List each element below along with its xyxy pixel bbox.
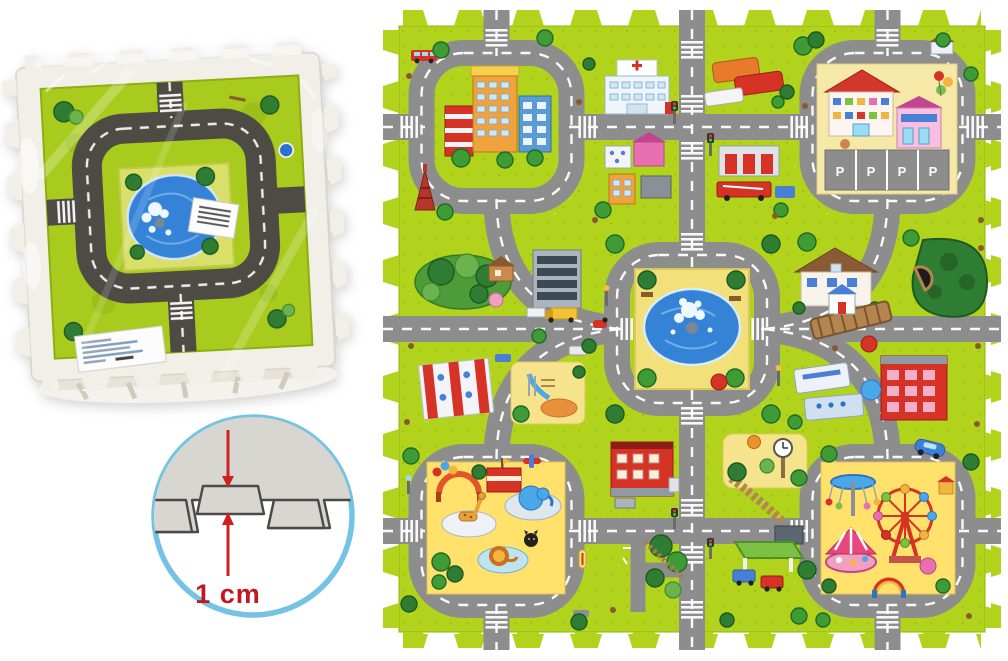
assembled-mat-svg: P P P P (383, 10, 1001, 650)
foam-tooth-right (268, 500, 324, 528)
parking-space-label: P (836, 164, 845, 179)
teddy-bear (840, 139, 850, 149)
packaged-mat-photo (1, 40, 353, 413)
fountain-pedestal (686, 322, 698, 334)
red-tower-building (445, 106, 473, 156)
parking-space-label: P (867, 164, 876, 179)
pig (489, 293, 503, 307)
sandbox (541, 399, 577, 417)
thickness-diagram: 1 cm (128, 408, 378, 624)
bus-stop (615, 498, 635, 508)
red-building (881, 356, 947, 420)
flower-bed (711, 374, 727, 390)
foam-tab-measured (197, 486, 264, 514)
product-photo: 1 cm (0, 0, 1008, 661)
thickness-label: 1 cm (195, 579, 261, 609)
blue-office-building (519, 96, 551, 152)
forest-park (415, 254, 515, 309)
parking-space-label: P (929, 164, 938, 179)
tile-zoo (401, 448, 589, 617)
blue-tree (861, 380, 881, 400)
barcode-sticker (188, 198, 239, 239)
gray-office-building (527, 250, 581, 323)
bench (641, 292, 653, 297)
foam-tooth-left (138, 500, 192, 532)
thickness-diagram-svg: 1 cm (128, 408, 378, 624)
playground (511, 362, 585, 424)
red-white-building (418, 358, 493, 419)
blue-car (733, 570, 755, 582)
tunnel-hill (913, 239, 987, 317)
package-illustration (1, 40, 353, 413)
assembled-mat: P P P P (383, 10, 1001, 650)
orange-highrise (471, 66, 519, 152)
parking-lot: P P P P (825, 150, 949, 190)
cat (748, 436, 761, 449)
bench (729, 296, 741, 301)
lion-face (493, 550, 505, 562)
gas-canopy (735, 542, 803, 558)
red-car (761, 576, 783, 588)
pink-mouse (920, 558, 936, 574)
red-car (861, 336, 877, 352)
thermometer-sign (579, 550, 586, 568)
roundabout-sign (279, 143, 294, 158)
parking-space-label: P (898, 164, 907, 179)
